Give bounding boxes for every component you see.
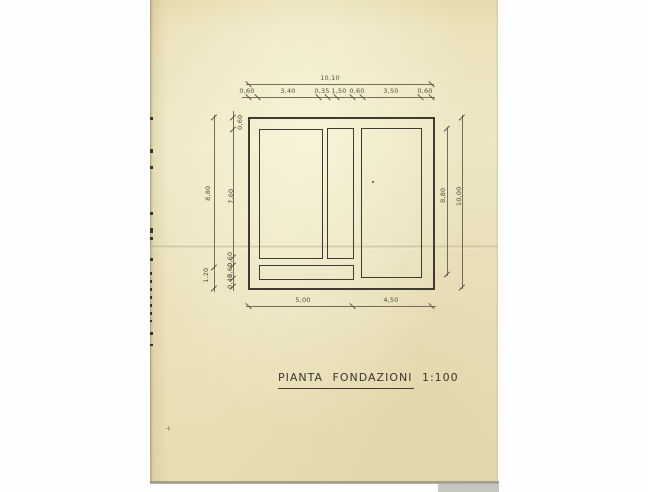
dim-bottom-right-label: 4,50 — [377, 297, 405, 304]
dim-left-outer-bottom-label: 1,20 — [203, 263, 210, 287]
pencil-cross-mark: + — [165, 425, 172, 433]
paper-edge-mark — [150, 332, 153, 335]
dim-left-inner-bottom-label: 0,45 — [227, 270, 234, 292]
dim-right-inner-label: 8,80 — [440, 183, 447, 207]
paper-edge-mark — [150, 237, 153, 240]
dim-top-seg-label: 0,60 — [239, 88, 255, 95]
dim-top-total-label: 10,10 — [316, 75, 344, 82]
dim-bottom-left-label: 5,00 — [289, 297, 317, 304]
footing-bottom-strip — [259, 265, 354, 280]
footing-left — [259, 129, 323, 259]
paper-edge-marks — [150, 272, 152, 322]
paper-left-edge — [150, 0, 153, 483]
dim-top-seg-label: 0,60 — [349, 88, 365, 95]
dim-line-right-inner — [447, 127, 448, 276]
paper-edge-mark — [150, 117, 153, 120]
dim-top-seg-label: 3,40 — [280, 88, 296, 95]
dim-top-seg-label: 0,35 — [314, 88, 330, 95]
paper-edge-mark — [150, 166, 153, 169]
footing-center — [327, 128, 354, 259]
dim-top-seg-label: 3,50 — [383, 88, 399, 95]
dim-line-top-total — [246, 84, 434, 85]
drawing-title: PIANTA FONDAZIONI 1:100 — [278, 371, 414, 389]
dim-left-inner-main-label: 7,60 — [228, 184, 235, 208]
dim-left-outer-main-label: 8,80 — [205, 181, 212, 205]
paper-right-edge — [496, 0, 498, 483]
dim-line-bottom — [246, 306, 436, 307]
dim-top-seg-label: 0,60 — [417, 88, 433, 95]
paper-edge-mark — [150, 212, 153, 215]
paper-edge-mark — [150, 258, 153, 261]
paper-edge-mark — [150, 344, 153, 346]
dim-right-outer-label: 10,00 — [456, 182, 463, 210]
footing-right — [361, 128, 422, 278]
paper-edge-mark — [150, 228, 153, 233]
scanner-shadow — [438, 484, 499, 492]
scan-background: + 10,10 0,60 3,40 0,35 1,50 0,60 3,50 0,… — [0, 0, 648, 492]
dim-top-seg-label: 1,50 — [331, 88, 347, 95]
paper-edge-mark — [150, 149, 153, 153]
dim-left-inner-top-label: 0,60 — [237, 110, 244, 134]
